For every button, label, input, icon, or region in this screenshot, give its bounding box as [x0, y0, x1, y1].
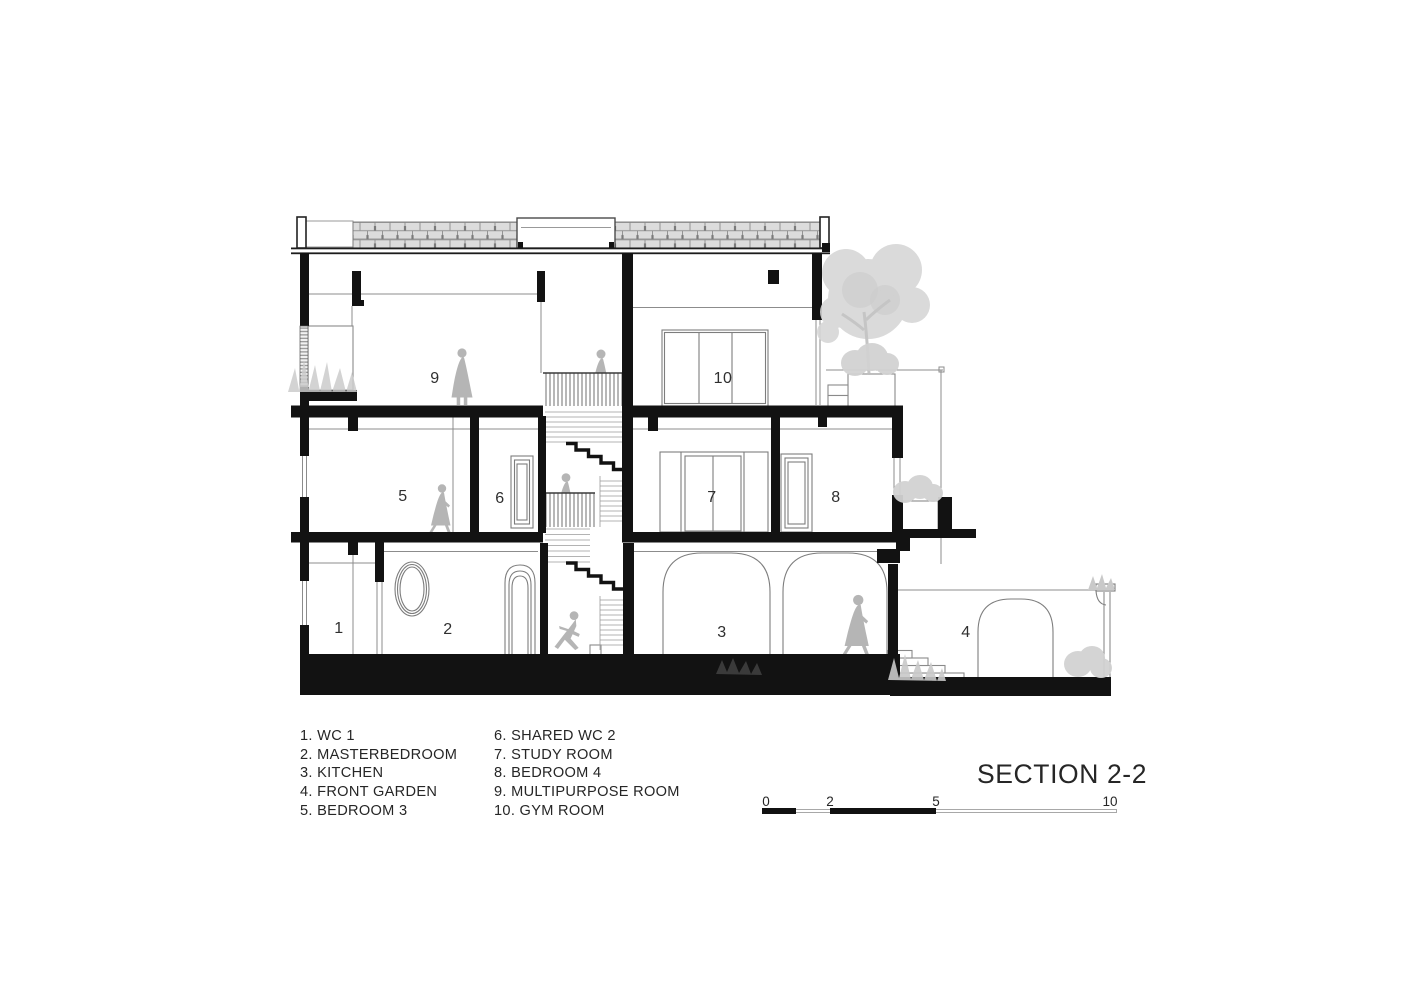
garden-bush [1064, 646, 1112, 678]
room-label-4: 4 [961, 624, 970, 642]
legend-item: 5. BEDROOM 3 [300, 802, 457, 821]
room-label-3: 3 [717, 624, 726, 642]
wall-top-tuft [1088, 574, 1115, 590]
stair-flight-upper [566, 444, 626, 477]
scale-tick-10: 10 [1102, 794, 1117, 809]
doors-windows [308, 326, 1115, 694]
room-label-5: 5 [398, 488, 407, 506]
bedroom4-door [781, 454, 812, 532]
child-running [555, 611, 580, 650]
architectural-sheet: 1 2 3 4 5 6 7 8 9 10 1. WC 1 2. MASTERBE… [0, 0, 1414, 1000]
gym-window [662, 330, 768, 406]
wc2-door [511, 456, 533, 528]
room-label-10: 10 [714, 370, 733, 388]
section-title: SECTION 2-2 [977, 759, 1147, 790]
ground-slab [300, 654, 900, 695]
legend-item: 4. FRONT GARDEN [300, 783, 457, 802]
legend-item: 9. MULTIPURPOSE ROOM [494, 783, 680, 802]
skylight [517, 218, 615, 248]
legend-item: 1. WC 1 [300, 727, 457, 746]
legend-item: 6. SHARED WC 2 [494, 727, 680, 746]
scale-bar-segment [762, 808, 796, 814]
scale-bar-segment [830, 808, 936, 814]
legend-item: 10. GYM ROOM [494, 802, 680, 821]
scale-bar-line [762, 809, 1117, 813]
staircase [545, 412, 627, 650]
room-label-8: 8 [831, 489, 840, 507]
scale-tick-0: 0 [762, 794, 770, 809]
scale-tick-5: 5 [932, 794, 940, 809]
room-label-9: 9 [430, 370, 439, 388]
person-bedroom3 [430, 484, 451, 532]
bedroom-arched-door [505, 565, 535, 654]
legend-column-2: 6. SHARED WC 2 7. STUDY ROOM 8. BEDROOM … [494, 727, 680, 821]
cut-walls-slabs [291, 253, 1111, 696]
legend-item: 8. BEDROOM 4 [494, 764, 680, 783]
room-label-7: 7 [707, 489, 716, 507]
legend-column-1: 1. WC 1 2. MASTERBEDROOM 3. KITCHEN 4. F… [300, 727, 457, 821]
scale-tick-2: 2 [826, 794, 834, 809]
canopy-bar [900, 529, 976, 538]
legend-item: 7. STUDY ROOM [494, 746, 680, 765]
room-label-6: 6 [495, 490, 504, 508]
person-multipurpose-room [452, 348, 473, 405]
terrace-planter-box [308, 326, 1104, 694]
stair-flight-lower [566, 563, 626, 596]
room-label-1: 1 [334, 620, 343, 638]
roof-parapet [291, 217, 830, 254]
bedroom-mirror [395, 562, 429, 616]
legend-item: 2. MASTERBEDROOM [300, 746, 457, 765]
person-kitchen [843, 595, 869, 654]
legend-item: 3. KITCHEN [300, 764, 457, 783]
room-label-2: 2 [443, 621, 452, 639]
